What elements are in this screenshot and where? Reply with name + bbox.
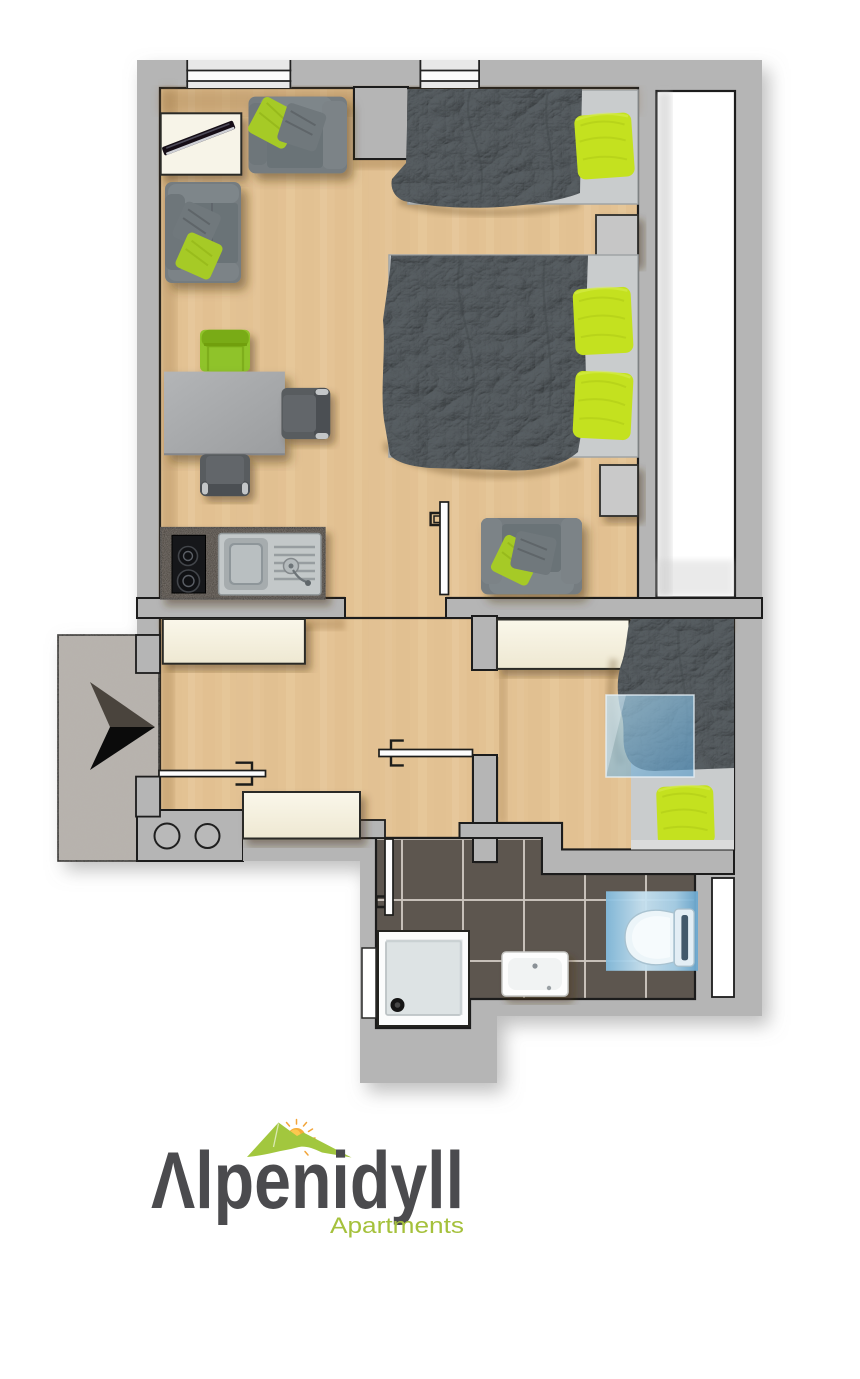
svg-text:Apartments: Apartments	[330, 1213, 464, 1238]
